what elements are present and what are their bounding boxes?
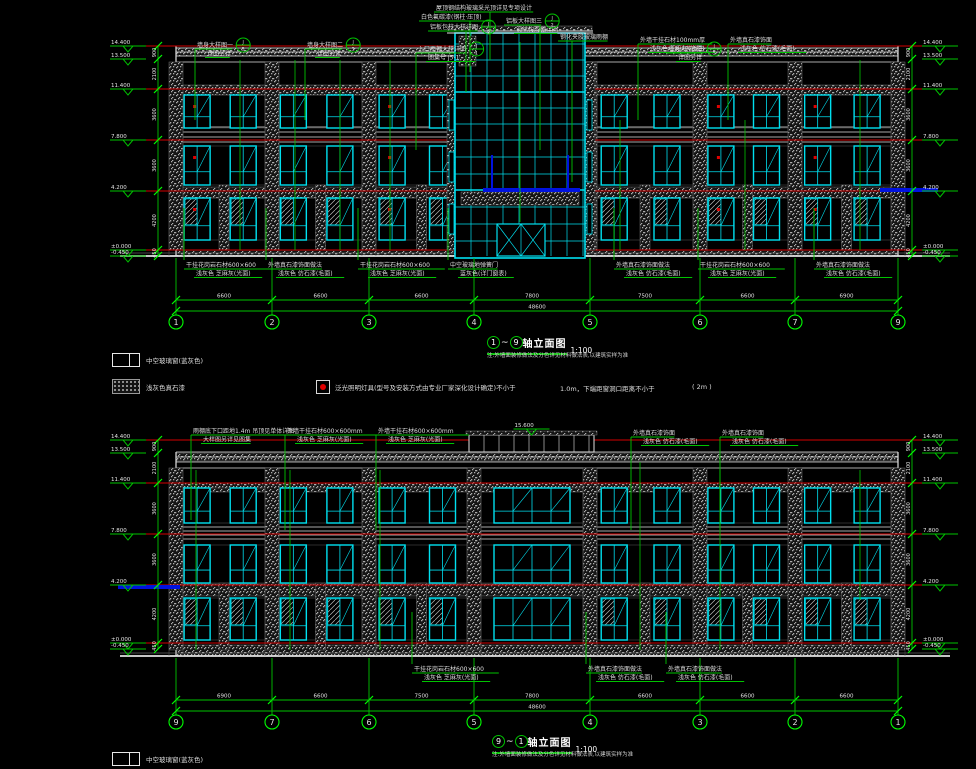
level-triangle	[935, 140, 945, 146]
side-slit-window	[449, 204, 454, 234]
grid-bubble-glyph: 1	[487, 336, 500, 349]
window	[754, 545, 780, 583]
window	[230, 146, 256, 185]
level-column-left: 14.40013.50011.4007.8004.200±0.000-0.450…	[110, 40, 162, 262]
annotation-text: 铝板包柱大样详图	[430, 23, 478, 31]
bay-dim: 6600	[638, 694, 652, 700]
callout-bottom: 5	[713, 51, 716, 57]
level-marker: 11.400	[922, 477, 958, 489]
spandrel-pane	[231, 599, 243, 625]
annotation-text: 浅灰色 芝麻灰(光面)	[710, 270, 765, 278]
spandrel-pane	[709, 199, 721, 225]
spandrel-pane	[709, 599, 721, 625]
annotation-text: 外墙真石漆饰面做法	[668, 665, 722, 673]
window	[184, 198, 210, 240]
wide-window	[494, 545, 570, 583]
vertical-dim: 3600	[152, 108, 158, 121]
grid-pier	[362, 468, 376, 650]
level-value: 13.500	[923, 447, 943, 453]
callout-top: J	[352, 40, 354, 46]
side-slit-window	[587, 152, 592, 182]
level-triangle	[935, 534, 945, 540]
window	[854, 146, 880, 185]
annotation-text: 浅灰色 仿石漆(毛面)	[678, 674, 733, 682]
annotation-text: 浅灰色 仿石漆(毛面)	[626, 270, 681, 278]
window	[280, 95, 306, 128]
bay-dim: 7800	[525, 294, 539, 300]
window	[805, 95, 831, 128]
level-triangle	[935, 649, 945, 655]
level-marker: 7.800	[922, 528, 958, 540]
window	[379, 95, 405, 128]
total-dim: 48600	[528, 705, 546, 711]
vertical-dim: 2100	[152, 68, 158, 81]
level-value: 13.500	[923, 53, 943, 59]
bay-dim: 6600	[415, 294, 429, 300]
grid-bubble-glyph: 1	[515, 735, 528, 748]
cad-sheet: 1234567966006600660078007500660069004860…	[0, 0, 976, 769]
annotation-text: 详图另详	[678, 54, 702, 62]
window	[601, 488, 627, 523]
roof-bulkhead: 15.600	[466, 423, 597, 452]
window	[754, 198, 780, 240]
total-dim: 48600	[528, 305, 546, 311]
grid-number: 3	[366, 318, 371, 327]
spandrel-pane	[655, 599, 667, 625]
level-triangle	[123, 140, 133, 146]
level-marker: 14.400	[922, 40, 958, 52]
window	[327, 488, 353, 523]
vertical-dim: 2100	[906, 462, 912, 475]
grid-number: 6	[697, 318, 702, 327]
level-triangle	[935, 440, 945, 446]
annotation-text: 白色氟碳漆(钢柱·压顶)	[421, 13, 482, 21]
grid-pier	[788, 62, 802, 250]
spandrel-pane	[755, 199, 767, 225]
facade-lamp	[814, 105, 817, 108]
facade-lamp	[193, 156, 196, 159]
window	[184, 146, 210, 185]
bay-dim: 6600	[314, 294, 328, 300]
window	[280, 545, 306, 583]
annotation-text: 外墙干挂石材600×600mm	[287, 427, 363, 435]
window	[280, 488, 306, 523]
mid-pier	[219, 185, 229, 250]
side-canopy-blue	[118, 585, 180, 589]
level-column-left: 14.40013.50011.4007.8004.200±0.000-0.450…	[110, 434, 162, 655]
grid-pier	[169, 62, 183, 250]
level-column-right: 14.40013.50011.4007.8004.200±0.000-0.450…	[906, 40, 958, 262]
level-marker: 4.200	[110, 185, 146, 197]
vertical-dim: 2100	[152, 462, 158, 475]
window-swatch	[112, 353, 140, 367]
window	[230, 545, 256, 583]
level-marker: 11.400	[110, 83, 146, 95]
annotation-text: 墙身大样图一	[197, 41, 233, 49]
grid-pier	[467, 468, 481, 650]
level-triangle	[123, 649, 133, 655]
grid-number: 1	[173, 318, 178, 327]
level-triangle	[123, 59, 133, 65]
mid-pier	[219, 583, 229, 650]
vertical-dim: 3600	[152, 502, 158, 515]
vertical-dim: 450	[906, 641, 912, 651]
lamp-icon	[316, 380, 330, 394]
window	[654, 545, 680, 583]
side-slit-window	[449, 100, 454, 130]
window	[854, 598, 880, 640]
spandrel-pane	[185, 599, 197, 625]
annotation-text: 墙身大样图三	[668, 45, 704, 53]
level-marker: 14.400	[110, 40, 146, 52]
vertical-dim: 4200	[906, 608, 912, 621]
callout-top: J	[475, 44, 477, 50]
spandrel-pane	[328, 599, 340, 625]
title-separator: ~	[500, 338, 510, 348]
window	[708, 198, 734, 240]
mid-pier	[316, 583, 326, 650]
annotation-text: 外墙真石漆饰面做法	[616, 261, 670, 269]
window	[230, 488, 256, 523]
level-triangle	[123, 453, 133, 459]
bulkhead	[469, 435, 594, 452]
title-separator: ~	[505, 737, 515, 747]
annotation-text: 外墙真石漆饰面做法	[816, 261, 870, 269]
level-value: 14.400	[111, 40, 131, 46]
level-value: -0.450	[923, 250, 941, 256]
level-marker: -0.450	[110, 250, 146, 262]
level-marker: 7.800	[110, 134, 146, 146]
vertical-dim: 450	[152, 248, 158, 258]
window	[601, 598, 627, 640]
side-slit-window	[587, 204, 592, 234]
level-marker: 7.800	[922, 134, 958, 146]
window	[379, 545, 405, 583]
annotation-text: 浅灰色 仿石漆(毛面)	[740, 45, 795, 53]
annotation-text: 外墙真石漆饰面	[722, 429, 764, 437]
level-marker: 14.400	[110, 434, 146, 446]
spandrel-pane	[431, 599, 443, 625]
window	[654, 146, 680, 185]
window	[854, 488, 880, 523]
annotation-text: 干挂花岗岩石材600×600	[186, 261, 256, 269]
window	[708, 95, 734, 128]
bay-dim: 7500	[415, 694, 429, 700]
level-marker: 11.400	[922, 83, 958, 95]
window	[184, 598, 210, 640]
callout-top: J	[487, 22, 489, 28]
grid-pier	[693, 468, 707, 650]
callout-bottom: 1	[475, 51, 478, 57]
spandrel-pane	[281, 199, 293, 225]
window	[805, 598, 831, 640]
window	[754, 488, 780, 523]
vertical-dim: 450	[152, 641, 158, 651]
window	[708, 146, 734, 185]
annotation-text: 浅灰色 芝麻灰(光面)	[196, 270, 251, 278]
window	[654, 95, 680, 128]
level-triangle	[935, 46, 945, 52]
window	[601, 545, 627, 583]
vertical-dim: 3600	[906, 553, 912, 566]
window	[327, 598, 353, 640]
grid-number: 4	[587, 718, 592, 727]
window	[379, 198, 405, 240]
vertical-dim: 4200	[906, 214, 912, 227]
level-triangle	[935, 89, 945, 95]
level-marker: 13.500	[110, 447, 146, 459]
level-triangle	[935, 585, 945, 591]
elevation-note-top: 注:外墙面装修做法及分色详见材料做法表,以建筑实样为准	[487, 351, 628, 359]
callout-top: J	[713, 44, 715, 50]
annotation-text: 浅灰色 芝麻灰(光面)	[388, 436, 443, 444]
annotation-text: 干挂花岗岩石材600×600	[360, 261, 430, 269]
window	[805, 545, 831, 583]
level-value: 11.400	[111, 83, 131, 89]
grid-pier	[891, 468, 905, 650]
annotation-text: 干挂花岗岩石材600×600	[414, 665, 484, 673]
mid-pier	[640, 583, 650, 650]
callout-bottom: 2	[551, 23, 554, 29]
level-value: -0.450	[111, 643, 129, 649]
annotation-text: 屋顶钢结构玻璃采光顶详见专项设计	[436, 4, 532, 12]
wide-window	[494, 598, 570, 640]
annotation-text: 中空玻璃地弹簧门	[450, 261, 498, 269]
spandrel-pane	[855, 599, 867, 625]
window	[230, 198, 256, 240]
level-marker: 13.500	[110, 53, 146, 65]
mid-pier	[316, 185, 326, 250]
legend-window-label: 中空玻璃窗(蓝灰色)	[146, 754, 203, 764]
level-triangle	[123, 191, 133, 197]
level-marker: 11.400	[110, 477, 146, 489]
level-value: -0.450	[111, 250, 129, 256]
annotation-text: 外墙干挂石材600×600mm	[378, 427, 454, 435]
spandrel-pane	[185, 199, 197, 225]
annotation-text: 浅灰色 仿石漆(毛面)	[643, 438, 698, 446]
lamp-note-2: ( 2m )	[692, 383, 712, 391]
level-value: 13.500	[111, 447, 131, 453]
bay-dim: 6900	[840, 294, 854, 300]
annotation-text: 外墙真石漆饰面做法	[268, 261, 322, 269]
grid-bubble-glyph: 9	[492, 735, 505, 748]
level-value: 14.400	[923, 434, 943, 440]
bay-dim: 6900	[217, 694, 231, 700]
spandrel-pane	[602, 599, 614, 625]
level-marker: 13.500	[922, 447, 958, 459]
bay-dim: 6600	[314, 694, 328, 700]
annotation-text: 入口雨棚大样详图	[418, 45, 466, 53]
callout-bottom: 5	[242, 47, 245, 53]
callout-top: J	[551, 16, 553, 22]
bay-dim: 7800	[525, 694, 539, 700]
window	[708, 488, 734, 523]
level-triangle	[935, 453, 945, 459]
grid-pier	[891, 62, 905, 250]
level-value: 14.400	[111, 434, 131, 440]
stone-paint-swatch	[112, 379, 140, 394]
level-value: 4.200	[111, 185, 127, 191]
grid-number: 5	[471, 718, 476, 727]
annotation-text: 浅灰色 仿石漆(毛面)	[826, 270, 881, 278]
vertical-dim: 3600	[906, 159, 912, 172]
window	[805, 146, 831, 185]
window	[184, 545, 210, 583]
annotation-text: 外墙真石漆饰面	[633, 429, 675, 437]
mid-pier	[640, 185, 650, 250]
level-triangle	[935, 59, 945, 65]
callout-top: J	[242, 40, 244, 46]
mid-pier	[842, 583, 852, 650]
title-text: 轴立面图	[523, 339, 567, 350]
annotation-text: 浅灰色 仿石漆(毛面)	[732, 438, 787, 446]
vertical-dim: 900	[152, 48, 158, 58]
mid-pier	[417, 583, 427, 650]
grid-number: 2	[269, 318, 274, 327]
annotation-text: 铝板大样图三	[506, 17, 542, 25]
legend-item-window-bottom: 中空玻璃窗(蓝灰色)	[112, 752, 203, 766]
grid-number: 1	[895, 718, 900, 727]
side-slit-window	[587, 100, 592, 130]
annotation-text: 外墙真石漆饰面做法	[588, 665, 642, 673]
window-swatch	[112, 752, 140, 766]
legend-lamp-label: 泛光照明灯具(型号及安装方式由专业厂家深化设计确定)不小于	[335, 382, 516, 392]
level-value: 4.200	[923, 579, 939, 585]
legend-item-lamp: 泛光照明灯具(型号及安装方式由专业厂家深化设计确定)不小于	[316, 380, 516, 394]
level-marker: 4.200	[922, 579, 958, 591]
spandrel-pane	[806, 199, 818, 225]
spandrel-pane	[855, 199, 867, 225]
legend-item-window: 中空玻璃窗(蓝灰色)	[112, 353, 203, 367]
level-value: 7.800	[111, 134, 127, 140]
annotation-text: 浅灰色 芝麻灰(光面)	[424, 674, 479, 682]
level-value: 14.400	[923, 40, 943, 46]
level-marker: 4.200	[922, 185, 958, 197]
window	[654, 488, 680, 523]
level-value: 11.400	[923, 477, 943, 483]
wide-window	[494, 488, 570, 523]
window	[754, 598, 780, 640]
spandrel-pane	[806, 599, 818, 625]
level-marker: 13.500	[922, 53, 958, 65]
level-marker: -0.450	[922, 250, 958, 262]
title-text: 轴立面图	[528, 738, 572, 749]
level-value: 4.200	[111, 579, 127, 585]
vertical-dim: 4200	[152, 608, 158, 621]
level-value: 7.800	[923, 134, 939, 140]
callout-bottom: 5	[352, 47, 355, 53]
window	[854, 95, 880, 128]
grid-number: 6	[366, 718, 371, 727]
annotation-text: 浅灰色 芝麻灰(光面)	[370, 270, 425, 278]
level-triangle	[935, 483, 945, 489]
annotation-text: 大样图另详见图集	[203, 436, 251, 444]
callout-bottom: 6	[487, 29, 490, 35]
window	[280, 598, 306, 640]
vertical-dim: 3600	[152, 159, 158, 172]
facade-lamp	[717, 208, 720, 211]
vertical-dim: 2100	[906, 68, 912, 81]
window	[805, 198, 831, 240]
bay-dim: 6600	[840, 694, 854, 700]
entrance-tower	[447, 26, 595, 258]
grid-pier	[362, 62, 376, 250]
window	[430, 488, 456, 523]
vertical-dim: 4200	[152, 214, 158, 227]
level-value: 11.400	[923, 83, 943, 89]
window	[280, 198, 306, 240]
grid-number: 7	[269, 718, 274, 727]
grid-number: 3	[697, 718, 702, 727]
window	[230, 598, 256, 640]
level-triangle	[123, 534, 133, 540]
elevation-bottom: 15.6009765432169006600750078006600660066…	[110, 423, 958, 729]
grid-pier	[693, 62, 707, 250]
legend-paint-label: 浅灰色真石漆	[146, 382, 185, 392]
grid-pier	[265, 62, 279, 250]
spandrel-pane	[281, 599, 293, 625]
level-column-right: 14.40013.50011.4007.8004.200±0.000-0.450…	[906, 434, 958, 655]
window	[379, 488, 405, 523]
vertical-dim: 450	[906, 248, 912, 258]
legend-window-label: 中空玻璃窗(蓝灰色)	[146, 355, 203, 365]
grid-number: 7	[792, 318, 797, 327]
window	[601, 146, 627, 185]
vertical-dim: 3600	[906, 502, 912, 515]
grid-pier	[265, 468, 279, 650]
lamp-note-1: 1.0m，下端距窗洞口距离不小于	[560, 383, 655, 393]
facade-lamp	[717, 156, 720, 159]
vertical-dim: 900	[152, 442, 158, 452]
window	[430, 598, 456, 640]
window	[379, 598, 405, 640]
window	[654, 598, 680, 640]
mid-pier	[842, 185, 852, 250]
bay-dim: 6600	[217, 294, 231, 300]
grid-pier	[583, 468, 597, 650]
level-triangle	[123, 46, 133, 52]
window	[654, 198, 680, 240]
vertical-dim: 900	[906, 442, 912, 452]
window	[379, 146, 405, 185]
annotation-text: 详图另详	[317, 50, 341, 58]
window	[805, 488, 831, 523]
window	[754, 95, 780, 128]
level-value: 4.200	[923, 185, 939, 191]
grid-number: 4	[471, 318, 476, 327]
annotation-text: 蓝灰色(详门窗表)	[460, 270, 507, 278]
annotation-text: 干挂花岗岩石材600×600	[700, 261, 770, 269]
vertical-dim: 3600	[906, 108, 912, 121]
spandrel-pane	[380, 599, 392, 625]
level-value: 13.500	[111, 53, 131, 59]
grid-number: 9	[895, 318, 900, 327]
spandrel-pane	[431, 199, 443, 225]
vertical-dim: 3600	[152, 553, 158, 566]
window	[708, 545, 734, 583]
elevation-top: 1234567966006600660078007500660069004860…	[110, 26, 958, 329]
annotation-text: 详图另详	[207, 50, 231, 58]
vertical-dim: 900	[906, 48, 912, 58]
level-marker: 14.400	[922, 434, 958, 446]
window	[430, 545, 456, 583]
level-value: 11.400	[111, 477, 131, 483]
annotation-text: 浅灰色 芝麻灰(光面)	[297, 436, 352, 444]
grid-number: 9	[173, 718, 178, 727]
window	[184, 95, 210, 128]
window	[601, 95, 627, 128]
spandrel-pane	[655, 199, 667, 225]
